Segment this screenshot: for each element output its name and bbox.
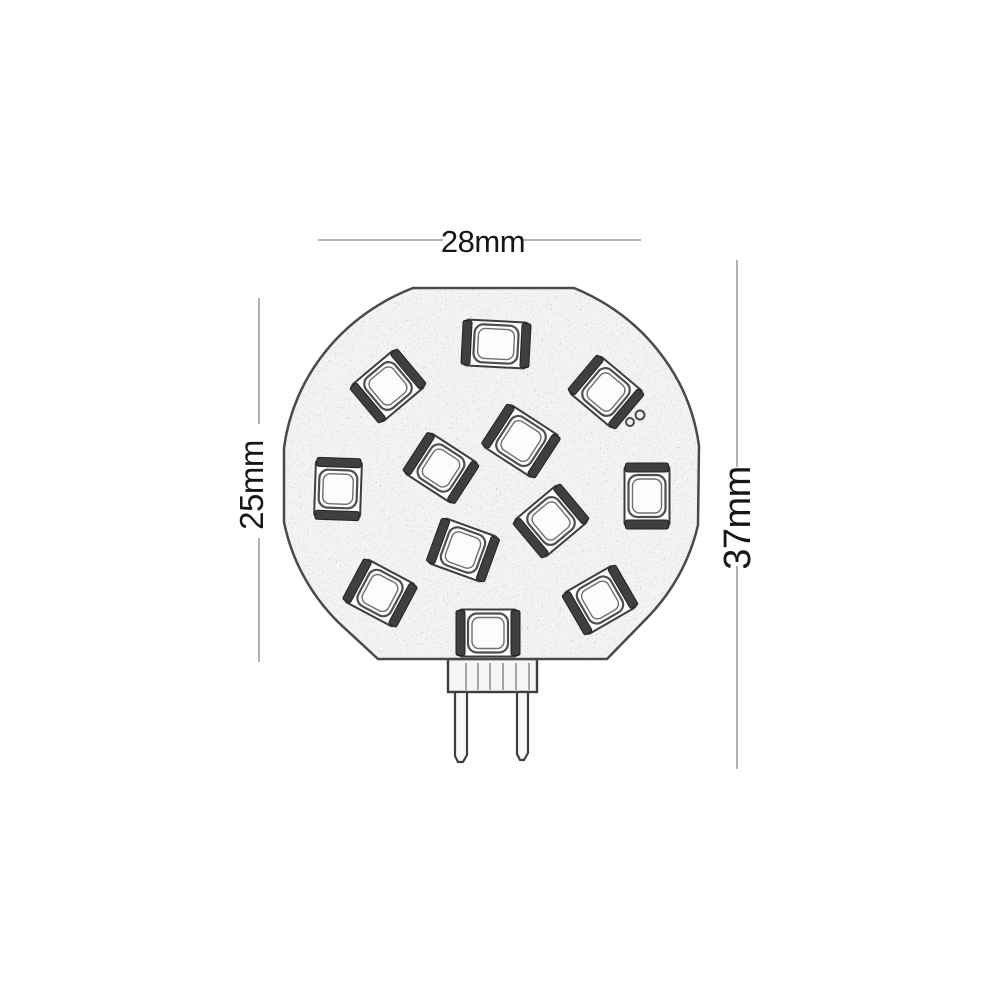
electrode-bar bbox=[317, 457, 361, 468]
electrode-bar bbox=[511, 611, 520, 656]
smd-led-chip bbox=[461, 319, 531, 368]
electrode-bar bbox=[461, 320, 472, 364]
smd-led-chip bbox=[625, 463, 670, 529]
led-lens bbox=[318, 469, 357, 508]
electrode-bar bbox=[626, 520, 669, 529]
width-dimension-label: 28mm bbox=[441, 224, 525, 259]
electrode-bar bbox=[626, 463, 669, 472]
electrode-bar bbox=[520, 323, 531, 367]
led-lens bbox=[473, 324, 519, 364]
electrode-bar bbox=[315, 510, 359, 521]
led-bulb-dimension-diagram: 28mm 25mm 37mm bbox=[0, 0, 1000, 1000]
disc-height-dimension-label: 25mm bbox=[233, 440, 270, 530]
g4-pin bbox=[517, 692, 528, 760]
g4-pin bbox=[455, 692, 467, 762]
total-height-dimension-label: 37mm bbox=[717, 466, 759, 570]
smd-led-chip bbox=[456, 610, 520, 657]
connector-base bbox=[448, 659, 537, 692]
smd-led-chip bbox=[314, 457, 362, 521]
diagram-canvas: 28mm 25mm 37mm bbox=[0, 0, 1000, 1000]
electrode-bar bbox=[456, 611, 465, 656]
